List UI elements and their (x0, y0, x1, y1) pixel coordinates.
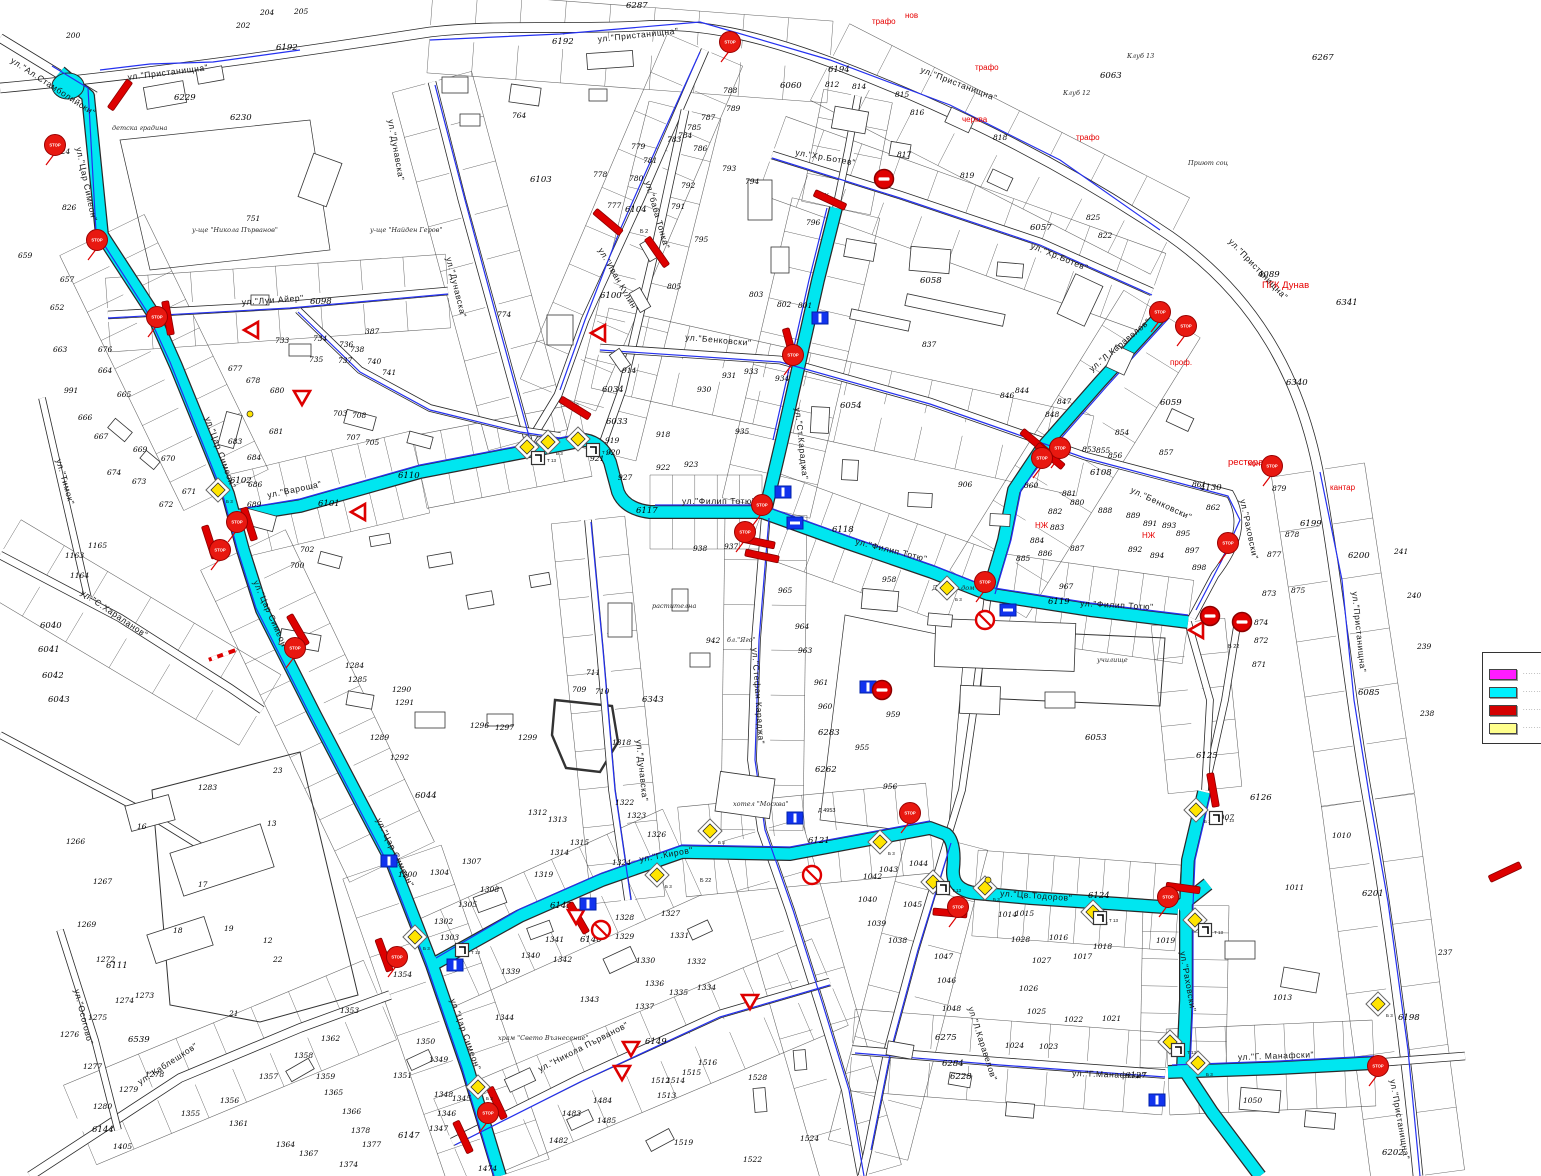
parcel-number: 677 (228, 364, 243, 373)
parcel-number: 1023 (1039, 1042, 1058, 1051)
map-legend: · ····· ································… (1482, 652, 1541, 744)
legend-item: ·········· (1489, 685, 1541, 699)
parcel-number: 815 (895, 90, 910, 99)
parcel-number: 664 (98, 366, 113, 375)
one-way-sign-icon (381, 855, 397, 867)
parcel-number: 705 (365, 438, 380, 447)
parcel-number: 880 (1070, 498, 1085, 507)
road-id-label: 6058 (920, 276, 942, 286)
one-way-sign-icon (775, 486, 791, 498)
parcel-number: 1378 (351, 1126, 370, 1135)
parcel-number: 711 (586, 668, 600, 677)
building (586, 50, 633, 69)
parcel-number: 894 (1150, 551, 1165, 560)
road-id-label: 6343 (642, 695, 664, 705)
street-name-label: ул."Ст.Караджа" (793, 407, 811, 480)
sign-code-label: Т 13 (547, 458, 557, 463)
parcel-number: 237 (1437, 948, 1453, 957)
parcel-number: 1327 (661, 909, 680, 918)
building (407, 431, 433, 449)
parcel-number: 204 (259, 8, 275, 17)
parcel-number: 1274 (115, 996, 134, 1005)
parcel-number: 963 (798, 646, 813, 655)
parcel-number: 788 (723, 86, 738, 95)
parcel-number: 1328 (615, 913, 634, 922)
sign-code-label: Б 2 (640, 229, 648, 235)
red-poi-label: трафо (1076, 133, 1100, 142)
building (987, 169, 1013, 191)
road-id-label: 6127 (1125, 1071, 1147, 1081)
parcel-number: 777 (607, 201, 622, 210)
parcel-number: 1275 (88, 1013, 107, 1022)
parcel-number: 1519 (674, 1138, 693, 1147)
legend-note: · ····· (1483, 653, 1541, 663)
parcel-number: 792 (681, 181, 696, 190)
parcel-number: 1267 (93, 877, 112, 886)
parcel-number: 672 (159, 500, 174, 509)
poi-label: у-ще "Найден Геров" (369, 226, 442, 234)
parcel-number: 709 (572, 685, 587, 694)
parcel-number: 1269 (77, 920, 96, 929)
parcel-number: 1514 (666, 1076, 685, 1085)
t13-sign-icon (456, 944, 469, 957)
legend-swatch (1489, 669, 1517, 680)
t13-sign-icon (1199, 924, 1212, 937)
parcel-number: 1026 (1019, 984, 1038, 993)
road-id-label: 6192 (552, 37, 574, 47)
parcel-number: 837 (922, 340, 937, 349)
road-id-label: 6284 (942, 1059, 964, 1069)
parcel-number: 734 (313, 334, 328, 343)
parcel-number: 1341 (545, 935, 564, 944)
parcel-number: 965 (778, 586, 793, 595)
parcel-number: 1349 (429, 1055, 448, 1064)
building (793, 1050, 807, 1071)
parcel-number: 1318 (612, 738, 631, 747)
road-id-label: 6108 (1090, 468, 1112, 478)
parcel-number: 1344 (495, 1013, 514, 1022)
svg-text:STOP: STOP (151, 315, 163, 320)
parcel-number: 1164 (70, 571, 89, 580)
parcel-number: 1047 (934, 952, 953, 961)
road-id-label: 6054 (840, 401, 862, 411)
parcel-number: 23 (272, 766, 283, 775)
street-name-label: ул."Бенковски" (685, 332, 752, 348)
parcel-number: 708 (352, 411, 367, 420)
parcel-number: 1027 (1032, 956, 1051, 965)
street-casings (0, 25, 1465, 1176)
sign-code-label: Д 4953 (818, 808, 836, 814)
parcel-number: 670 (161, 454, 176, 463)
street-name-label: ул."Дунавска" (386, 119, 407, 182)
parcel-number: 847 (1057, 397, 1072, 406)
road-id-label: 6149 (645, 1037, 667, 1047)
building (990, 513, 1011, 526)
no-stopping-sign-icon (803, 866, 821, 884)
one-way-sign-icon (787, 517, 803, 529)
parcel-number: 1330 (636, 956, 655, 965)
legend-swatch (1489, 705, 1517, 716)
parcel-number: 703 (333, 409, 348, 418)
parcel-number: 871 (1252, 660, 1266, 669)
parcel-number: 848 (1045, 410, 1060, 419)
poi-label: Приют соц (1187, 159, 1229, 167)
parcel-number: 884 (1030, 536, 1045, 545)
parcel-number: 861 (1192, 480, 1206, 489)
building (509, 84, 541, 106)
parcel-number: 1377 (362, 1140, 381, 1149)
parcel-number: 812 (825, 80, 840, 89)
parcel-number: 1305 (458, 900, 477, 909)
parcel-number: 1340 (521, 951, 540, 960)
parcel-number: 681 (269, 427, 283, 436)
parcel-number: 931 (722, 371, 736, 380)
parcel-number: 21 (228, 1009, 239, 1018)
parcel-number: 678 (246, 376, 261, 385)
building (861, 588, 899, 611)
parcel-number: 922 (656, 463, 671, 472)
parcel-number: 1356 (220, 1096, 239, 1105)
poi-label: Клуб 12 (1062, 89, 1090, 97)
road-id-label: 6053 (1085, 733, 1107, 743)
parcel-number: 893 (1162, 521, 1177, 530)
road-id-label: 6063 (1100, 71, 1122, 81)
parcel-number: 889 (1126, 511, 1141, 520)
parcel-number: 1485 (597, 1116, 616, 1125)
parcel-number: 1048 (942, 1004, 961, 1013)
parcel-number: 1484 (593, 1096, 612, 1105)
building (289, 344, 311, 356)
poi-label: училище (1096, 656, 1128, 664)
parcel-number: 862 (1206, 503, 1221, 512)
building (771, 247, 789, 273)
parcel-number: 934 (775, 374, 790, 383)
parcel-number: 1357 (259, 1072, 278, 1081)
t13-sign-icon (1172, 1044, 1185, 1057)
parcel-number: 791 (671, 202, 685, 211)
parcel-number: 1266 (66, 837, 85, 846)
parcel-number: 1528 (748, 1073, 767, 1082)
road-id-label: 6042 (42, 671, 64, 681)
building (928, 613, 953, 627)
road-id-label: 6104 (625, 205, 647, 215)
parcel-number: 844 (1015, 386, 1030, 395)
parcel-number: 795 (694, 235, 709, 244)
road-id-label: 6098 (310, 297, 332, 307)
legend-label: ············ (1523, 671, 1541, 677)
building (748, 180, 772, 220)
building (687, 920, 712, 940)
parcel-number: 1289 (370, 733, 389, 742)
parcel-number: 872 (1254, 636, 1269, 645)
legend-label: ··········· (1523, 707, 1541, 713)
parcel-number: 702 (300, 545, 315, 554)
no-entry-sign-icon (873, 681, 892, 700)
sign-code-label: Б 3 (993, 897, 1000, 902)
red-poi-label: проф. (1170, 358, 1192, 367)
parcel-number: 1277 (83, 1062, 102, 1071)
parcel-number: 1024 (1005, 1041, 1024, 1050)
hydrant-dot-icon (985, 877, 991, 883)
one-way-sign-icon (1000, 604, 1016, 616)
parcel-number: 241 (1393, 547, 1408, 556)
parcel-number: 666 (78, 413, 93, 422)
map-canvas[interactable]: ул."Ал.Стамболийски"ул."Пристанищна"ул."… (0, 0, 1541, 1176)
parcel-number: 875 (1291, 586, 1306, 595)
parcel-number: 1308 (480, 885, 499, 894)
parcel-number: 857 (1159, 448, 1174, 457)
stop-sign-icon: STOP (87, 230, 108, 261)
parcel-number: 927 (618, 473, 633, 482)
parcel-number: 918 (656, 430, 671, 439)
parcel-number: 676 (98, 345, 113, 354)
parcel-number: 878 (1285, 530, 1300, 539)
parcel-number: 846 (1000, 391, 1015, 400)
parcel-number: 801 (798, 301, 812, 310)
parcel-number: 967 (1059, 582, 1074, 591)
road-id-label: 4089 (1257, 270, 1280, 280)
building (547, 315, 573, 345)
parcel-number: 1513 (657, 1091, 676, 1100)
road-id-label: 6199 (1300, 519, 1322, 529)
parcel-number: 956 (883, 782, 898, 791)
road-id-label: 6124 (1088, 891, 1110, 901)
parcel-number: 1022 (1064, 1015, 1083, 1024)
parcel-number: 1351 (393, 1071, 412, 1080)
parcel-number: 789 (726, 104, 741, 113)
parcel-number: 1354 (393, 970, 412, 979)
parcel-number: 895 (1176, 529, 1191, 538)
building (715, 771, 775, 818)
building (1304, 1111, 1335, 1130)
parcel-number: 1524 (800, 1134, 819, 1143)
legend-swatch (1489, 687, 1517, 698)
parcel-number: 1326 (647, 830, 666, 839)
building (1057, 274, 1103, 327)
svg-text:STOP: STOP (979, 580, 991, 585)
sign-code-label: Б 3 (423, 946, 430, 951)
sign-code-label: Т 13 (952, 888, 962, 893)
road-id-label: 6119 (1048, 597, 1070, 607)
building (427, 552, 453, 568)
stop-sign-icon: STOP (1176, 316, 1197, 347)
parcel-number: 1332 (687, 957, 706, 966)
building (841, 460, 858, 481)
road-closure-bar-icon (1488, 862, 1522, 883)
parcel-number: 887 (1070, 544, 1085, 553)
road-id-label: 6126 (1250, 793, 1272, 803)
hydrant-dot-icon (247, 411, 253, 417)
parcel-number: 1337 (635, 1002, 654, 1011)
red-poi-label: НЖ (1035, 521, 1049, 530)
parcel-number: 1165 (88, 541, 107, 550)
road-id-label: 6275 (935, 1033, 957, 1043)
sign-code-label: Б 3 (1206, 1072, 1213, 1077)
road-id-label: 6230 (230, 113, 252, 123)
parcel-number: 1346 (437, 1109, 456, 1118)
building (909, 246, 951, 273)
t13-sign-icon (587, 444, 600, 457)
parcel-number: 906 (958, 480, 973, 489)
legend-label: ········· (1523, 725, 1541, 731)
parcel-lines-layer (0, 0, 1465, 1176)
red-poi-label: кантар (1330, 483, 1356, 492)
stop-sign-icon: STOP (1032, 448, 1053, 479)
parcel-number: 780 (629, 174, 644, 183)
parcel-number: 1405 (113, 1142, 132, 1151)
building (934, 619, 1076, 672)
parcel-number: 991 (64, 386, 78, 395)
parcel-number: 1347 (429, 1124, 448, 1133)
parcel-number: 751 (246, 214, 260, 223)
block-outlines (120, 120, 1165, 1022)
parcel-number: 387 (365, 327, 380, 336)
road-id-label: 6539 (128, 1035, 150, 1045)
parcel-number: 733 (275, 336, 290, 345)
road-id-label: 6229 (174, 93, 196, 103)
parcel-number: 817 (897, 150, 912, 159)
road-id-label: 6125 (1196, 751, 1218, 761)
street-name-label: ул."С.Хараланов" (79, 587, 150, 639)
svg-text:STOP: STOP (787, 353, 799, 358)
parcel-number: 1482 (549, 1136, 568, 1145)
parcel-number: 686 (248, 480, 263, 489)
road-id-label: 6198 (1398, 1013, 1420, 1023)
parcel-number: 1361 (229, 1119, 248, 1128)
red-poi-label: ПГК Дунав (1262, 280, 1309, 291)
road-id-label: 6041 (38, 645, 60, 655)
road-id-label: 6287 (626, 1, 648, 11)
parcel-number: 959 (886, 710, 901, 719)
sign-code-label: В 22 (1228, 644, 1239, 650)
parcel-number: 1045 (903, 900, 922, 909)
sign-code-label: Б 3 (665, 884, 672, 889)
street-name-label: ул."Пристанищна" (1350, 591, 1368, 673)
road-id-label: 6340 (1286, 378, 1308, 388)
building (608, 603, 632, 637)
parcel-number: 1016 (1049, 933, 1068, 942)
parcel-number: 12 (263, 936, 273, 945)
parcel-number: 774 (497, 310, 512, 319)
parcel-number: 794 (745, 177, 760, 186)
parcel-number: 738 (350, 345, 365, 354)
parcel-number: 825 (1086, 213, 1101, 222)
parcel-number: 778 (593, 170, 608, 179)
no-entry-sign-icon (875, 170, 894, 189)
parcel-number: 935 (735, 427, 750, 436)
svg-text:STOP: STOP (1036, 456, 1048, 461)
parcel-number: 961 (814, 678, 828, 687)
building (369, 533, 390, 546)
parcel-number: 885 (1016, 554, 1031, 563)
road-id-label: 6057 (1030, 223, 1052, 233)
no-entry-sign-icon (1233, 613, 1252, 632)
parcel-number: 937 (724, 542, 739, 551)
parcel-number: 659 (18, 251, 33, 260)
road-id-label: 6194 (828, 65, 850, 75)
road-closure-bar-icon (107, 79, 132, 111)
parcel-number: 1292 (390, 753, 409, 762)
parcel-number: 238 (1419, 709, 1435, 718)
parcel-number: 883 (1050, 523, 1065, 532)
parcel-number: 1163 (65, 551, 84, 560)
parcel-number: 202 (235, 21, 251, 30)
stop-sign-icon: STOP (948, 897, 969, 928)
parcel-number: 1339 (501, 967, 520, 976)
building (1005, 1102, 1034, 1118)
parcel-number: 1299 (518, 733, 537, 742)
parcel-number: 856 (1108, 451, 1123, 460)
parcel-number: 1515 (682, 1068, 701, 1077)
parcel-number: 1284 (345, 661, 364, 670)
sign-code-label: Б 22 (700, 878, 711, 884)
parcel-number: 819 (960, 171, 975, 180)
parcel-number: 1025 (1027, 1007, 1046, 1016)
svg-text:STOP: STOP (391, 955, 403, 960)
road-id-label: 6267 (1312, 53, 1334, 63)
city-map: ул."Ал.Стамболийски"ул."Пристанищна"ул."… (0, 0, 1541, 1176)
parcel-number: 1019 (1156, 936, 1175, 945)
building (318, 551, 342, 568)
parcel-number: 1304 (430, 868, 449, 877)
stop-sign-icon: STOP (45, 135, 66, 166)
red-poi-label: нов (905, 11, 918, 20)
parcel-number: 853 (1082, 445, 1097, 454)
parcel-number: 1324 (612, 858, 631, 867)
road-id-label: 6059 (1160, 398, 1182, 408)
sign-code-label: Б 3 (718, 840, 725, 845)
parcel-number: 1010 (1332, 831, 1351, 840)
poi-label: хотел "Москва" (733, 800, 789, 808)
svg-text:STOP: STOP (1180, 324, 1192, 329)
parcel-number: 1335 (669, 988, 688, 997)
parcel-number: 735 (309, 355, 324, 364)
sign-code-label: Б 3 (556, 451, 563, 456)
building (147, 916, 213, 963)
parcel-number: 1296 (470, 721, 489, 730)
parcel-number: 873 (1262, 589, 1277, 598)
parcel-number: 1283 (198, 783, 217, 792)
poi-label: растителна (652, 602, 696, 610)
sign-code-label: Т 13 (1225, 818, 1235, 823)
yield-sign-icon (294, 391, 310, 405)
no-stopping-sign-icon (976, 611, 994, 629)
parcel-number: 740 (367, 357, 382, 366)
building (690, 653, 710, 667)
building (442, 77, 468, 93)
parcel-number: 22 (272, 955, 283, 964)
sign-code-label: Т 13 (1109, 918, 1119, 923)
street-name-label: ул."Филип Тотю" (682, 496, 756, 506)
building (346, 691, 374, 709)
parcel-number: 886 (1038, 549, 1053, 558)
parcel-number: 938 (693, 544, 708, 553)
sign-code-label: Б 3 (486, 1096, 493, 1101)
parcel-number: 802 (777, 300, 792, 309)
parcel-number: 1050 (1243, 1096, 1262, 1105)
parcel-number: 787 (701, 113, 716, 122)
building (810, 407, 829, 434)
legend-item: ············ (1489, 667, 1541, 681)
road-id-label: 6100 (600, 291, 622, 301)
road-id-label: 6147 (398, 1131, 420, 1141)
parcel-number: 13 (267, 819, 277, 828)
parcel-number: 1043 (879, 865, 898, 874)
building (1225, 941, 1255, 959)
road-id-label: 6341 (1336, 298, 1358, 308)
parcel-number: 1345 (452, 1094, 471, 1103)
parcel-number: 816 (910, 108, 925, 117)
